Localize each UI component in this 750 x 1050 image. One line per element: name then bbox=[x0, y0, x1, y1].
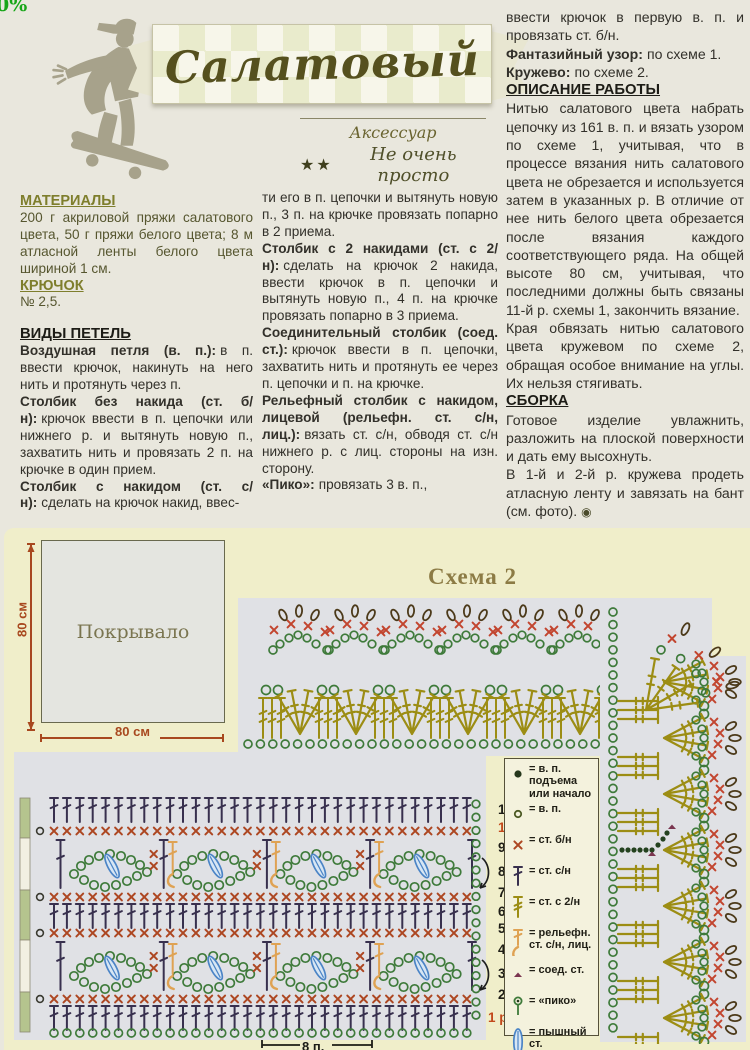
schema1-diagram: 1110987654321 р.8 п. bbox=[14, 752, 524, 1050]
assembly-text: Готовое изделие увлажнить, разложить на … bbox=[506, 411, 744, 466]
corner-zoom-mark: 0% bbox=[0, 0, 27, 16]
work-description: Нитью салатового цвета набрать цепочку и… bbox=[506, 99, 744, 319]
pattern-note: Фантазийный узор:по схеме 1. bbox=[506, 45, 744, 63]
legend-label: = «пико» bbox=[529, 994, 576, 1007]
dot-icon bbox=[508, 762, 529, 791]
stitch-def: Рельефный столбик с накидом, лицевой (ре… bbox=[262, 393, 498, 478]
materials-heading: МАТЕРИАЛЫ bbox=[20, 193, 253, 210]
legend-item-dc: = ст. с/н bbox=[508, 864, 596, 893]
legend-item-relief: = рельефн.ст. с/н, лиц. bbox=[508, 926, 596, 961]
intro-continuation: ввести крючок в первую в. п. и провязать… bbox=[506, 8, 744, 45]
schema2-title: Схема 2 bbox=[428, 564, 517, 590]
materials-text: 200 г акриловой пряжи салатового цвета, … bbox=[20, 210, 253, 278]
difficulty-label: Не очень просто bbox=[341, 144, 486, 186]
hook-size: № 2,5. bbox=[20, 294, 253, 311]
legend-item-picot: = «пико» bbox=[508, 994, 596, 1023]
chain-icon bbox=[508, 802, 529, 831]
stitch-def: ти его в п. цепочки и вытянуть новую п.,… bbox=[262, 190, 498, 241]
column-stitches: ти его в п. цепочки и вытянуть новую п.,… bbox=[262, 190, 498, 494]
picot-icon bbox=[508, 994, 529, 1023]
stitch-def: Воздушная петля (в. п.):в п. ввести крюч… bbox=[20, 343, 253, 394]
stitch-types-heading: ВИДЫ ПЕТЕЛЬ bbox=[20, 326, 253, 343]
slip-icon bbox=[508, 963, 529, 992]
ribbon-text: В 1-й и 2-й р. кружева продеть атласную … bbox=[506, 465, 744, 521]
legend-item-sc: = ст. б/н bbox=[508, 833, 596, 862]
stitch-def: Столбик с накидом (ст. с/н):сделать на к… bbox=[20, 479, 253, 513]
page-title: Салатовый bbox=[164, 34, 480, 93]
tr-icon bbox=[508, 895, 529, 924]
blanket-width-label: 80 см bbox=[95, 724, 170, 739]
column-description: ввести крючок в первую в. п. и провязать… bbox=[506, 8, 744, 521]
column-materials: МАТЕРИАЛЫ 200 г акриловой пряжи салатово… bbox=[20, 193, 253, 512]
legend-item-chain: = в. п. bbox=[508, 802, 596, 831]
lace-note: Кружево:по схеме 2. bbox=[506, 63, 744, 81]
legend-label: = ст. с/н bbox=[529, 864, 571, 877]
legend-label: = соед. ст. bbox=[529, 963, 584, 976]
stitch-def: Соединительный столбик (соед. ст.):крючо… bbox=[262, 325, 498, 393]
stitch-def: Столбик с 2 накидами (ст. с 2/н):сделать… bbox=[262, 241, 498, 326]
legend-label: = пышный ст.из 3-х накидов bbox=[529, 1025, 596, 1050]
legend-label: = ст. б/н bbox=[529, 833, 572, 846]
repeat-width-label: 8 п. bbox=[302, 1039, 324, 1050]
magazine-page: 0% Салатовый Аксессуар ★★ bbox=[0, 0, 750, 1050]
stitch-def: «Пико»:провязать 3 в. п., bbox=[262, 477, 498, 494]
category-block: Аксессуар ★★ Не очень просто bbox=[300, 118, 486, 186]
hook-heading: КРЮЧОК bbox=[20, 278, 253, 295]
legend-item-puff: = пышный ст.из 3-х накидов bbox=[508, 1025, 596, 1050]
title-banner: Салатовый bbox=[152, 24, 492, 104]
legend-label: = в. п.подъемаили начало bbox=[529, 762, 591, 800]
end-of-article-icon: ◉ bbox=[581, 505, 591, 519]
stitch-def: Столбик без накида (ст. б/н):крючок ввес… bbox=[20, 394, 253, 479]
legend-item-slip: = соед. ст. bbox=[508, 963, 596, 992]
category-label: Аксессуар bbox=[300, 123, 486, 142]
legend-label: = в. п. bbox=[529, 802, 561, 815]
legend-label: = рельефн.ст. с/н, лиц. bbox=[529, 926, 591, 952]
blanket-dimensions bbox=[20, 534, 235, 746]
legend-label: = ст. с 2/н bbox=[529, 895, 580, 908]
blanket-height-label: 80 см bbox=[15, 600, 30, 640]
puff-icon bbox=[508, 1025, 529, 1050]
legend-item-dot: = в. п.подъемаили начало bbox=[508, 762, 596, 800]
difficulty-stars-icon: ★★ bbox=[300, 155, 333, 175]
dc-icon bbox=[508, 864, 529, 893]
edging-note: Края обвязать нитью салатового цвета кру… bbox=[506, 319, 744, 392]
sc-icon bbox=[508, 833, 529, 862]
work-description-heading: ОПИСАНИЕ РАБОТЫ bbox=[506, 81, 744, 99]
relief-icon bbox=[508, 926, 529, 961]
schema2-vertical-diagram bbox=[600, 598, 750, 1044]
legend-item-tr: = ст. с 2/н bbox=[508, 895, 596, 924]
symbol-legend: = в. п.подъемаили начало= в. п.= ст. б/н… bbox=[504, 758, 599, 1036]
assembly-heading: СБОРКА bbox=[506, 392, 744, 410]
divider bbox=[300, 118, 486, 119]
